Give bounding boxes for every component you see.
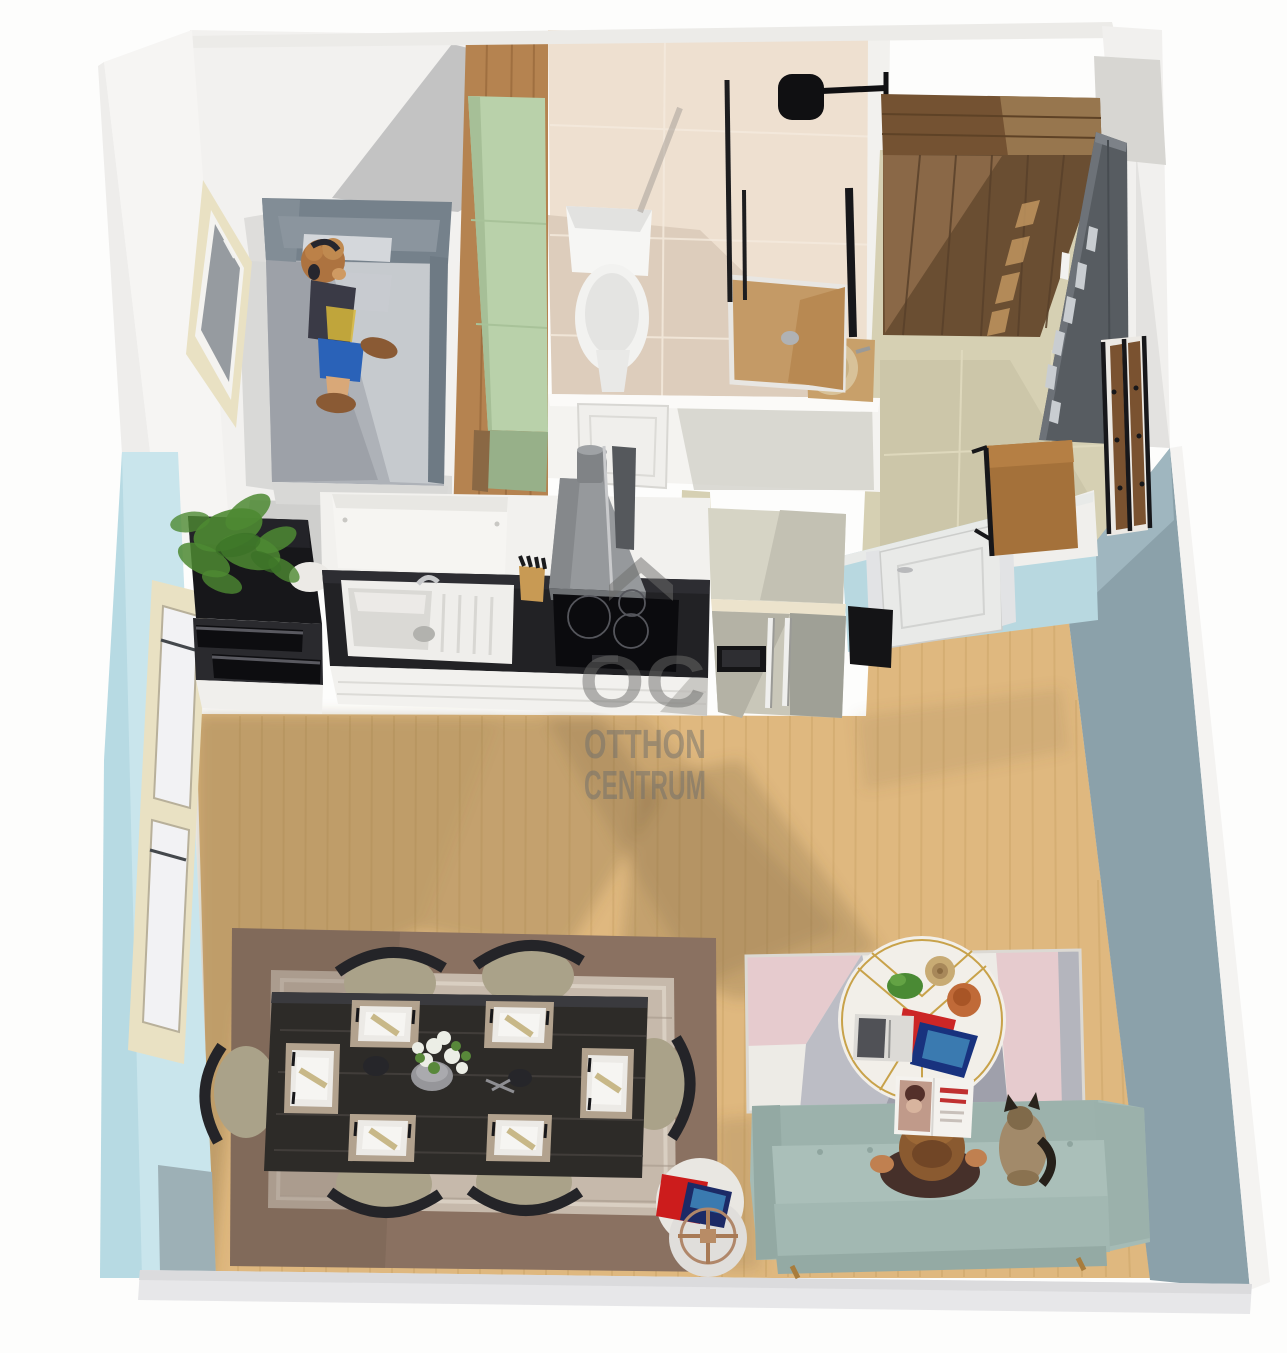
svg-text:CENTRUM: CENTRUM [584,762,706,808]
svg-text:OC: OC [579,642,706,723]
svg-text:OTTHON: OTTHON [584,721,706,767]
